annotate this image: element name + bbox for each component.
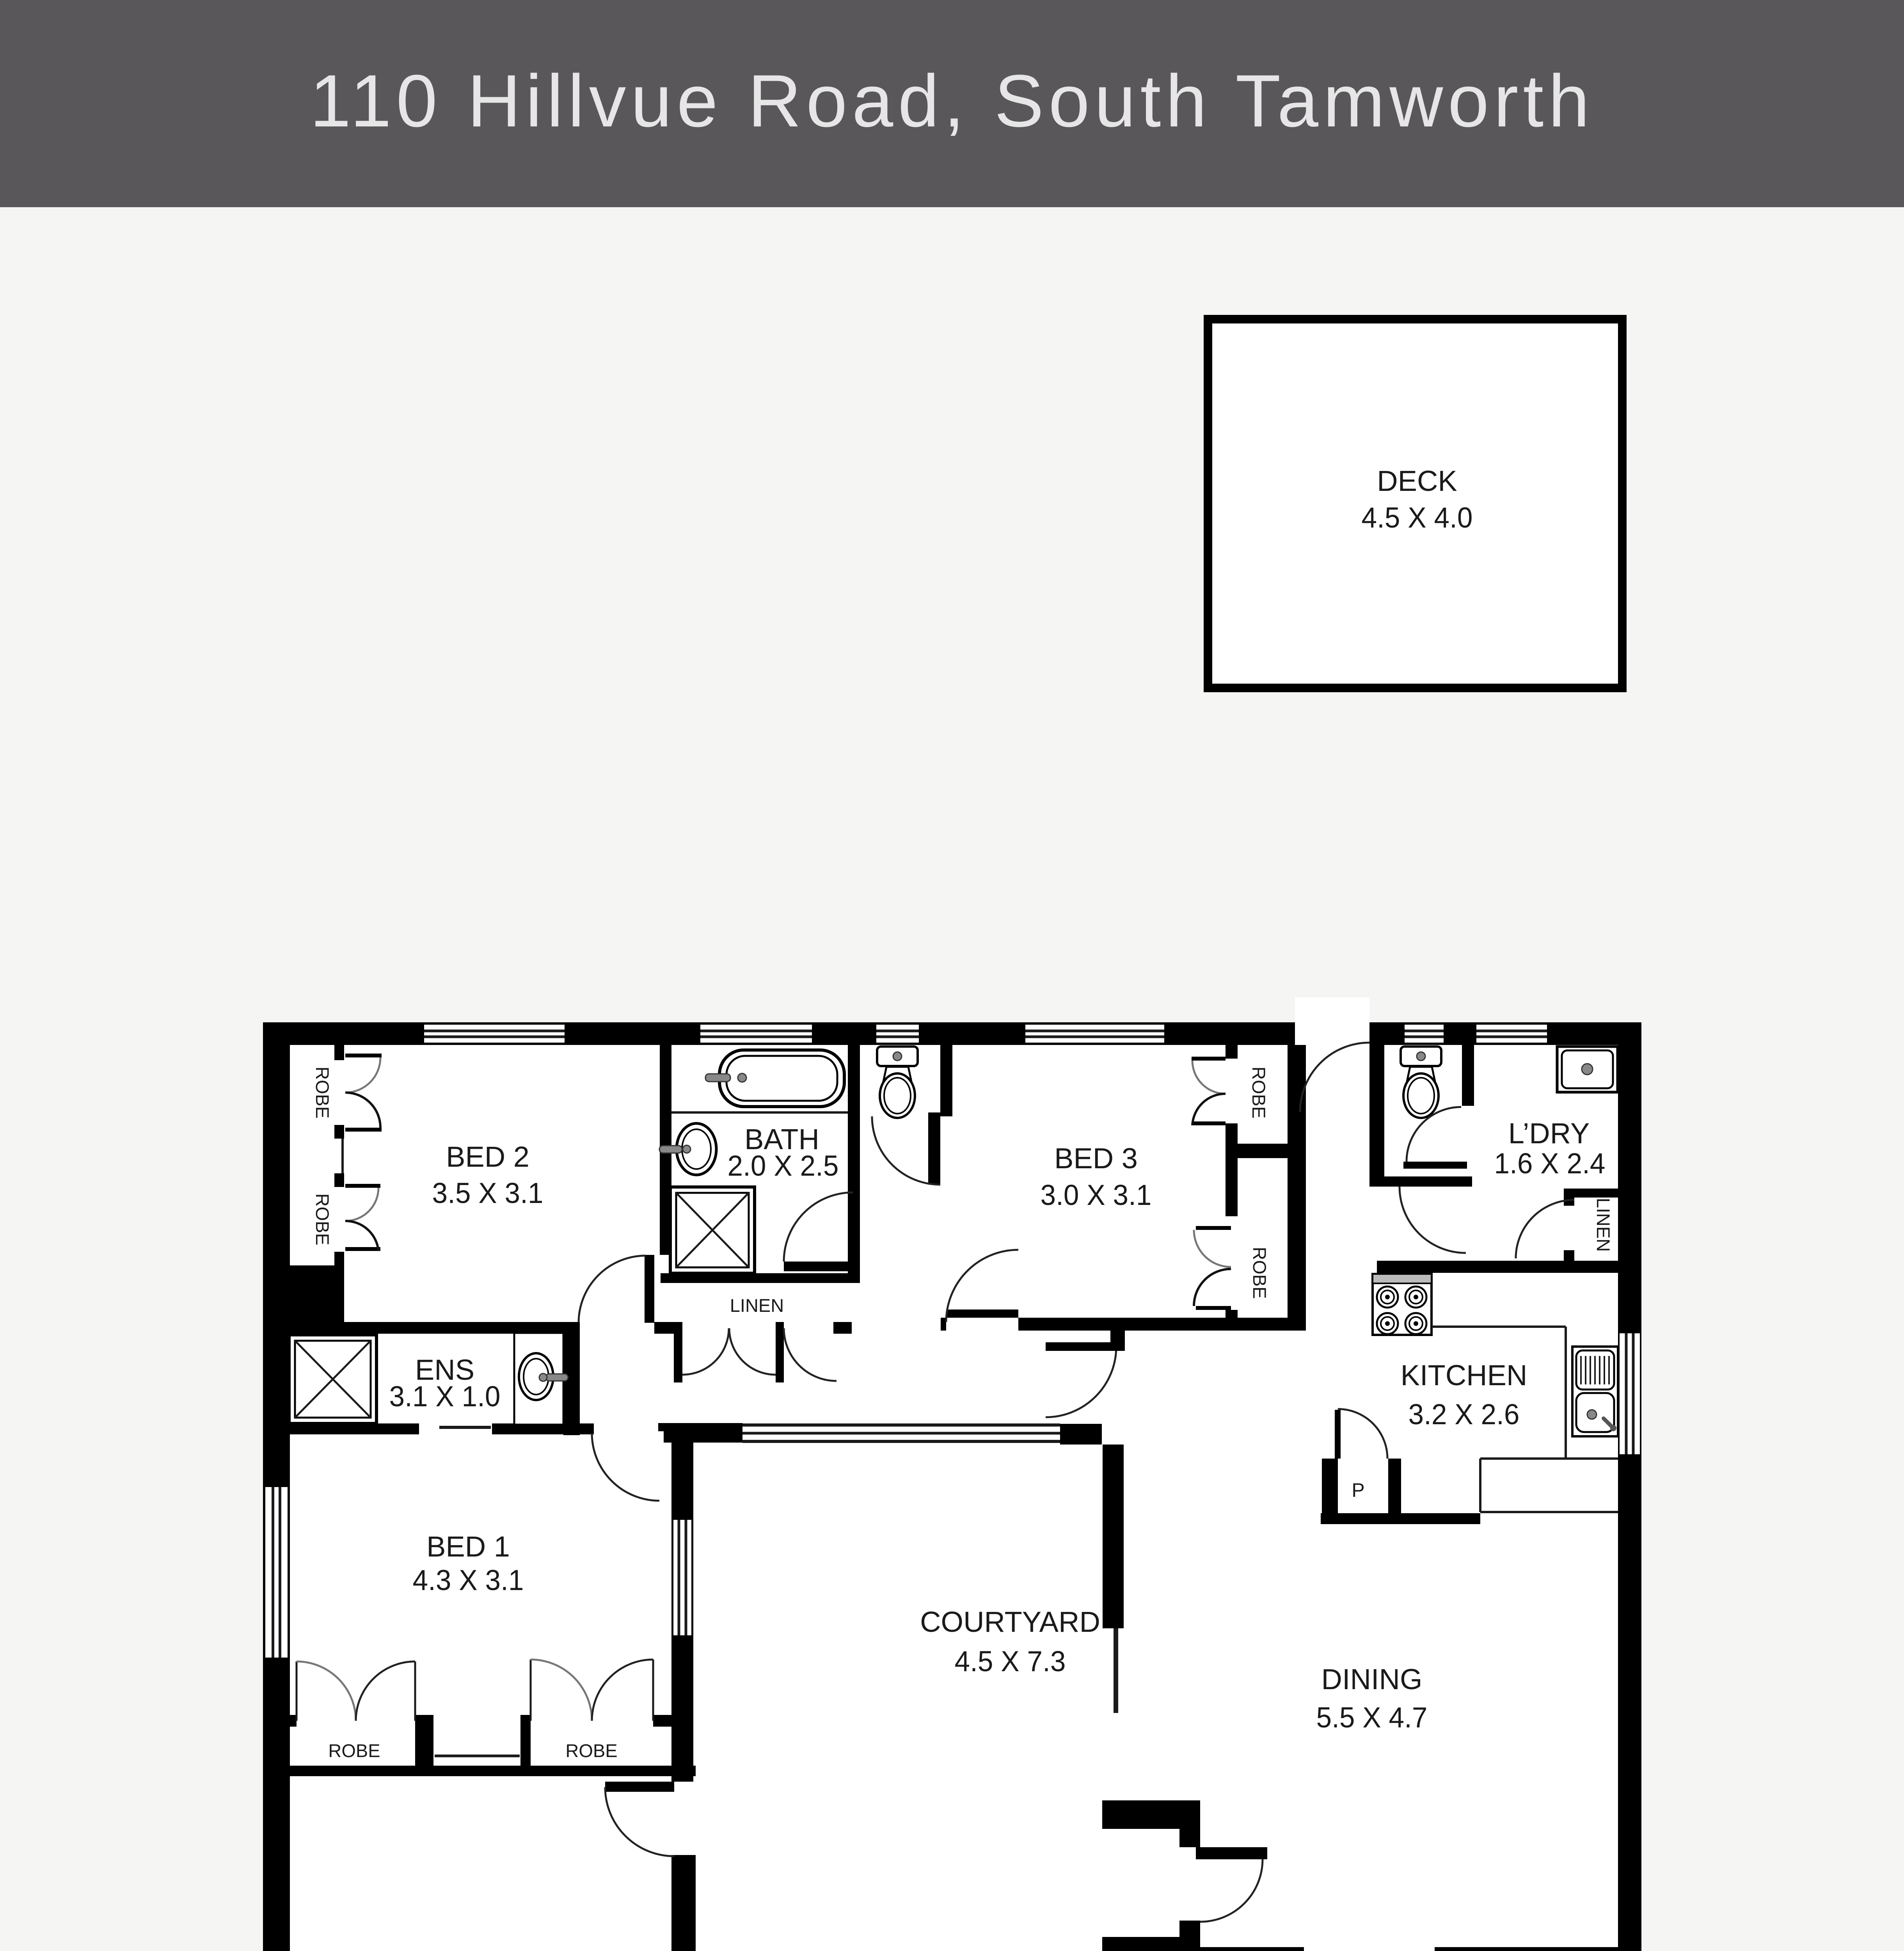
svg-text:ROBE: ROBE bbox=[1249, 1066, 1269, 1118]
svg-text:BED 3: BED 3 bbox=[1054, 1142, 1138, 1175]
svg-text:P: P bbox=[1352, 1479, 1364, 1501]
svg-text:4.5 X 7.3: 4.5 X 7.3 bbox=[955, 1645, 1066, 1677]
svg-text:DINING: DINING bbox=[1321, 1663, 1423, 1695]
svg-text:L’DRY: L’DRY bbox=[1508, 1117, 1590, 1150]
svg-text:4.3 X 3.1: 4.3 X 3.1 bbox=[413, 1564, 524, 1596]
svg-text:ROBE: ROBE bbox=[1249, 1247, 1270, 1299]
svg-text:1.6 X 2.4: 1.6 X 2.4 bbox=[1494, 1147, 1606, 1180]
svg-text:3.5 X 3.1: 3.5 X 3.1 bbox=[432, 1177, 543, 1209]
svg-text:3.0 X 3.1: 3.0 X 3.1 bbox=[1041, 1179, 1152, 1211]
svg-text:5.5 X 4.7: 5.5 X 4.7 bbox=[1316, 1701, 1428, 1734]
svg-text:ROBE: ROBE bbox=[312, 1193, 333, 1245]
svg-text:ROBE: ROBE bbox=[312, 1066, 333, 1118]
svg-text:COURTYARD: COURTYARD bbox=[920, 1606, 1100, 1638]
svg-text:2.0 X 2.5: 2.0 X 2.5 bbox=[728, 1150, 839, 1182]
svg-text:3.2 X 2.6: 3.2 X 2.6 bbox=[1408, 1398, 1520, 1430]
svg-text:LINEN: LINEN bbox=[1593, 1198, 1614, 1252]
svg-text:LINEN: LINEN bbox=[730, 1295, 784, 1316]
svg-text:ROBE: ROBE bbox=[328, 1740, 380, 1761]
svg-text:3.1 X 1.0: 3.1 X 1.0 bbox=[389, 1380, 501, 1413]
svg-text:DECK: DECK bbox=[1377, 465, 1457, 497]
svg-text:ROBE: ROBE bbox=[565, 1740, 617, 1761]
svg-text:KITCHEN: KITCHEN bbox=[1401, 1359, 1527, 1391]
svg-text:BED 1: BED 1 bbox=[426, 1530, 510, 1563]
svg-text:BED 2: BED 2 bbox=[446, 1141, 529, 1173]
svg-text:4.5 X 4.0: 4.5 X 4.0 bbox=[1362, 501, 1473, 534]
svg-text:110 Hillvue Road, South Tamwor: 110 Hillvue Road, South Tamworth bbox=[310, 60, 1594, 142]
